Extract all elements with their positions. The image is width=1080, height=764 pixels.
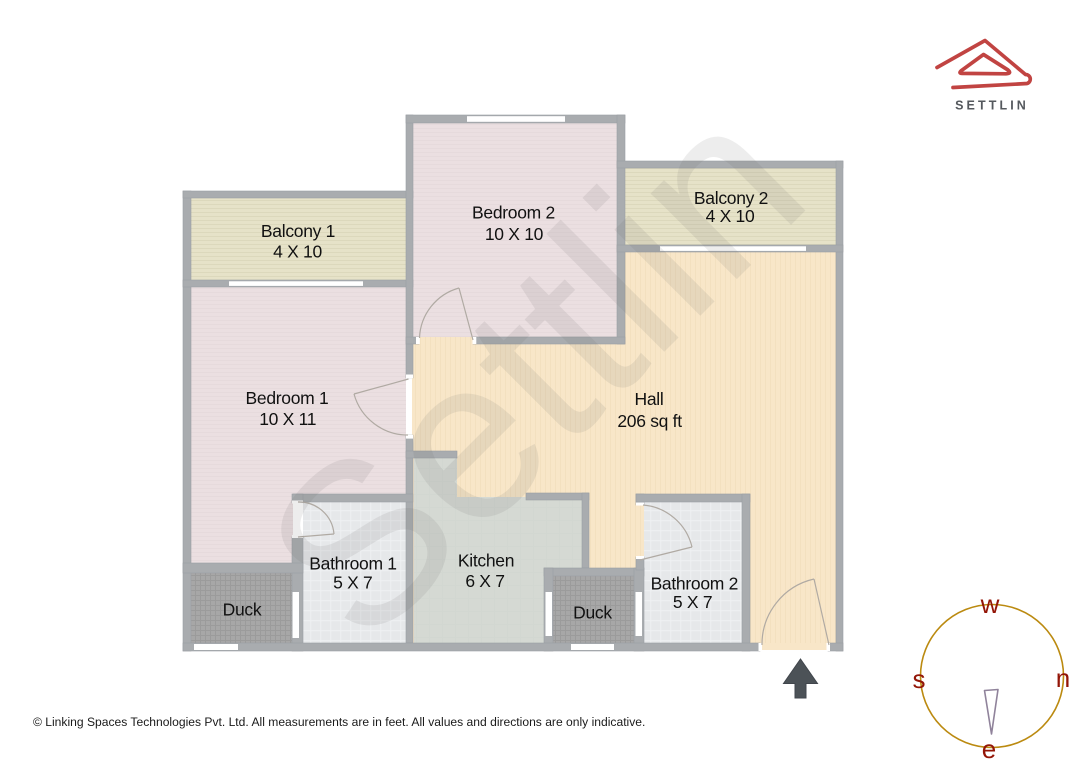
svg-text:e: e: [982, 734, 996, 764]
svg-text:Balcony 2: Balcony 2: [694, 188, 768, 208]
svg-text:10 X 10: 10 X 10: [485, 224, 544, 244]
svg-text:Kitchen: Kitchen: [458, 551, 514, 571]
svg-text:Duck: Duck: [223, 599, 262, 619]
svg-text:4 X 10: 4 X 10: [706, 206, 755, 226]
svg-text:Hall: Hall: [635, 389, 664, 409]
svg-text:4 X 10: 4 X 10: [273, 242, 322, 262]
svg-text:© Linking Spaces Technologies: © Linking Spaces Technologies Pvt. Ltd. …: [33, 715, 645, 729]
svg-text:Bedroom 2: Bedroom 2: [472, 203, 555, 223]
svg-text:w: w: [980, 589, 1000, 619]
svg-text:SETTLIN: SETTLIN: [955, 99, 1029, 113]
svg-text:s: s: [913, 664, 926, 694]
svg-text:Bathroom 2: Bathroom 2: [651, 574, 738, 594]
svg-text:Duck: Duck: [573, 602, 612, 622]
svg-text:6 X 7: 6 X 7: [465, 571, 504, 591]
svg-text:5 X 7: 5 X 7: [673, 592, 712, 612]
svg-text:Bathroom 1: Bathroom 1: [309, 554, 396, 574]
svg-text:206 sq ft: 206 sq ft: [617, 411, 682, 431]
svg-text:Bedroom 1: Bedroom 1: [246, 388, 329, 408]
svg-text:10 X 11: 10 X 11: [259, 409, 316, 429]
svg-text:5 X 7: 5 X 7: [333, 573, 372, 593]
svg-text:n: n: [1056, 663, 1070, 693]
svg-text:Balcony 1: Balcony 1: [261, 221, 335, 241]
